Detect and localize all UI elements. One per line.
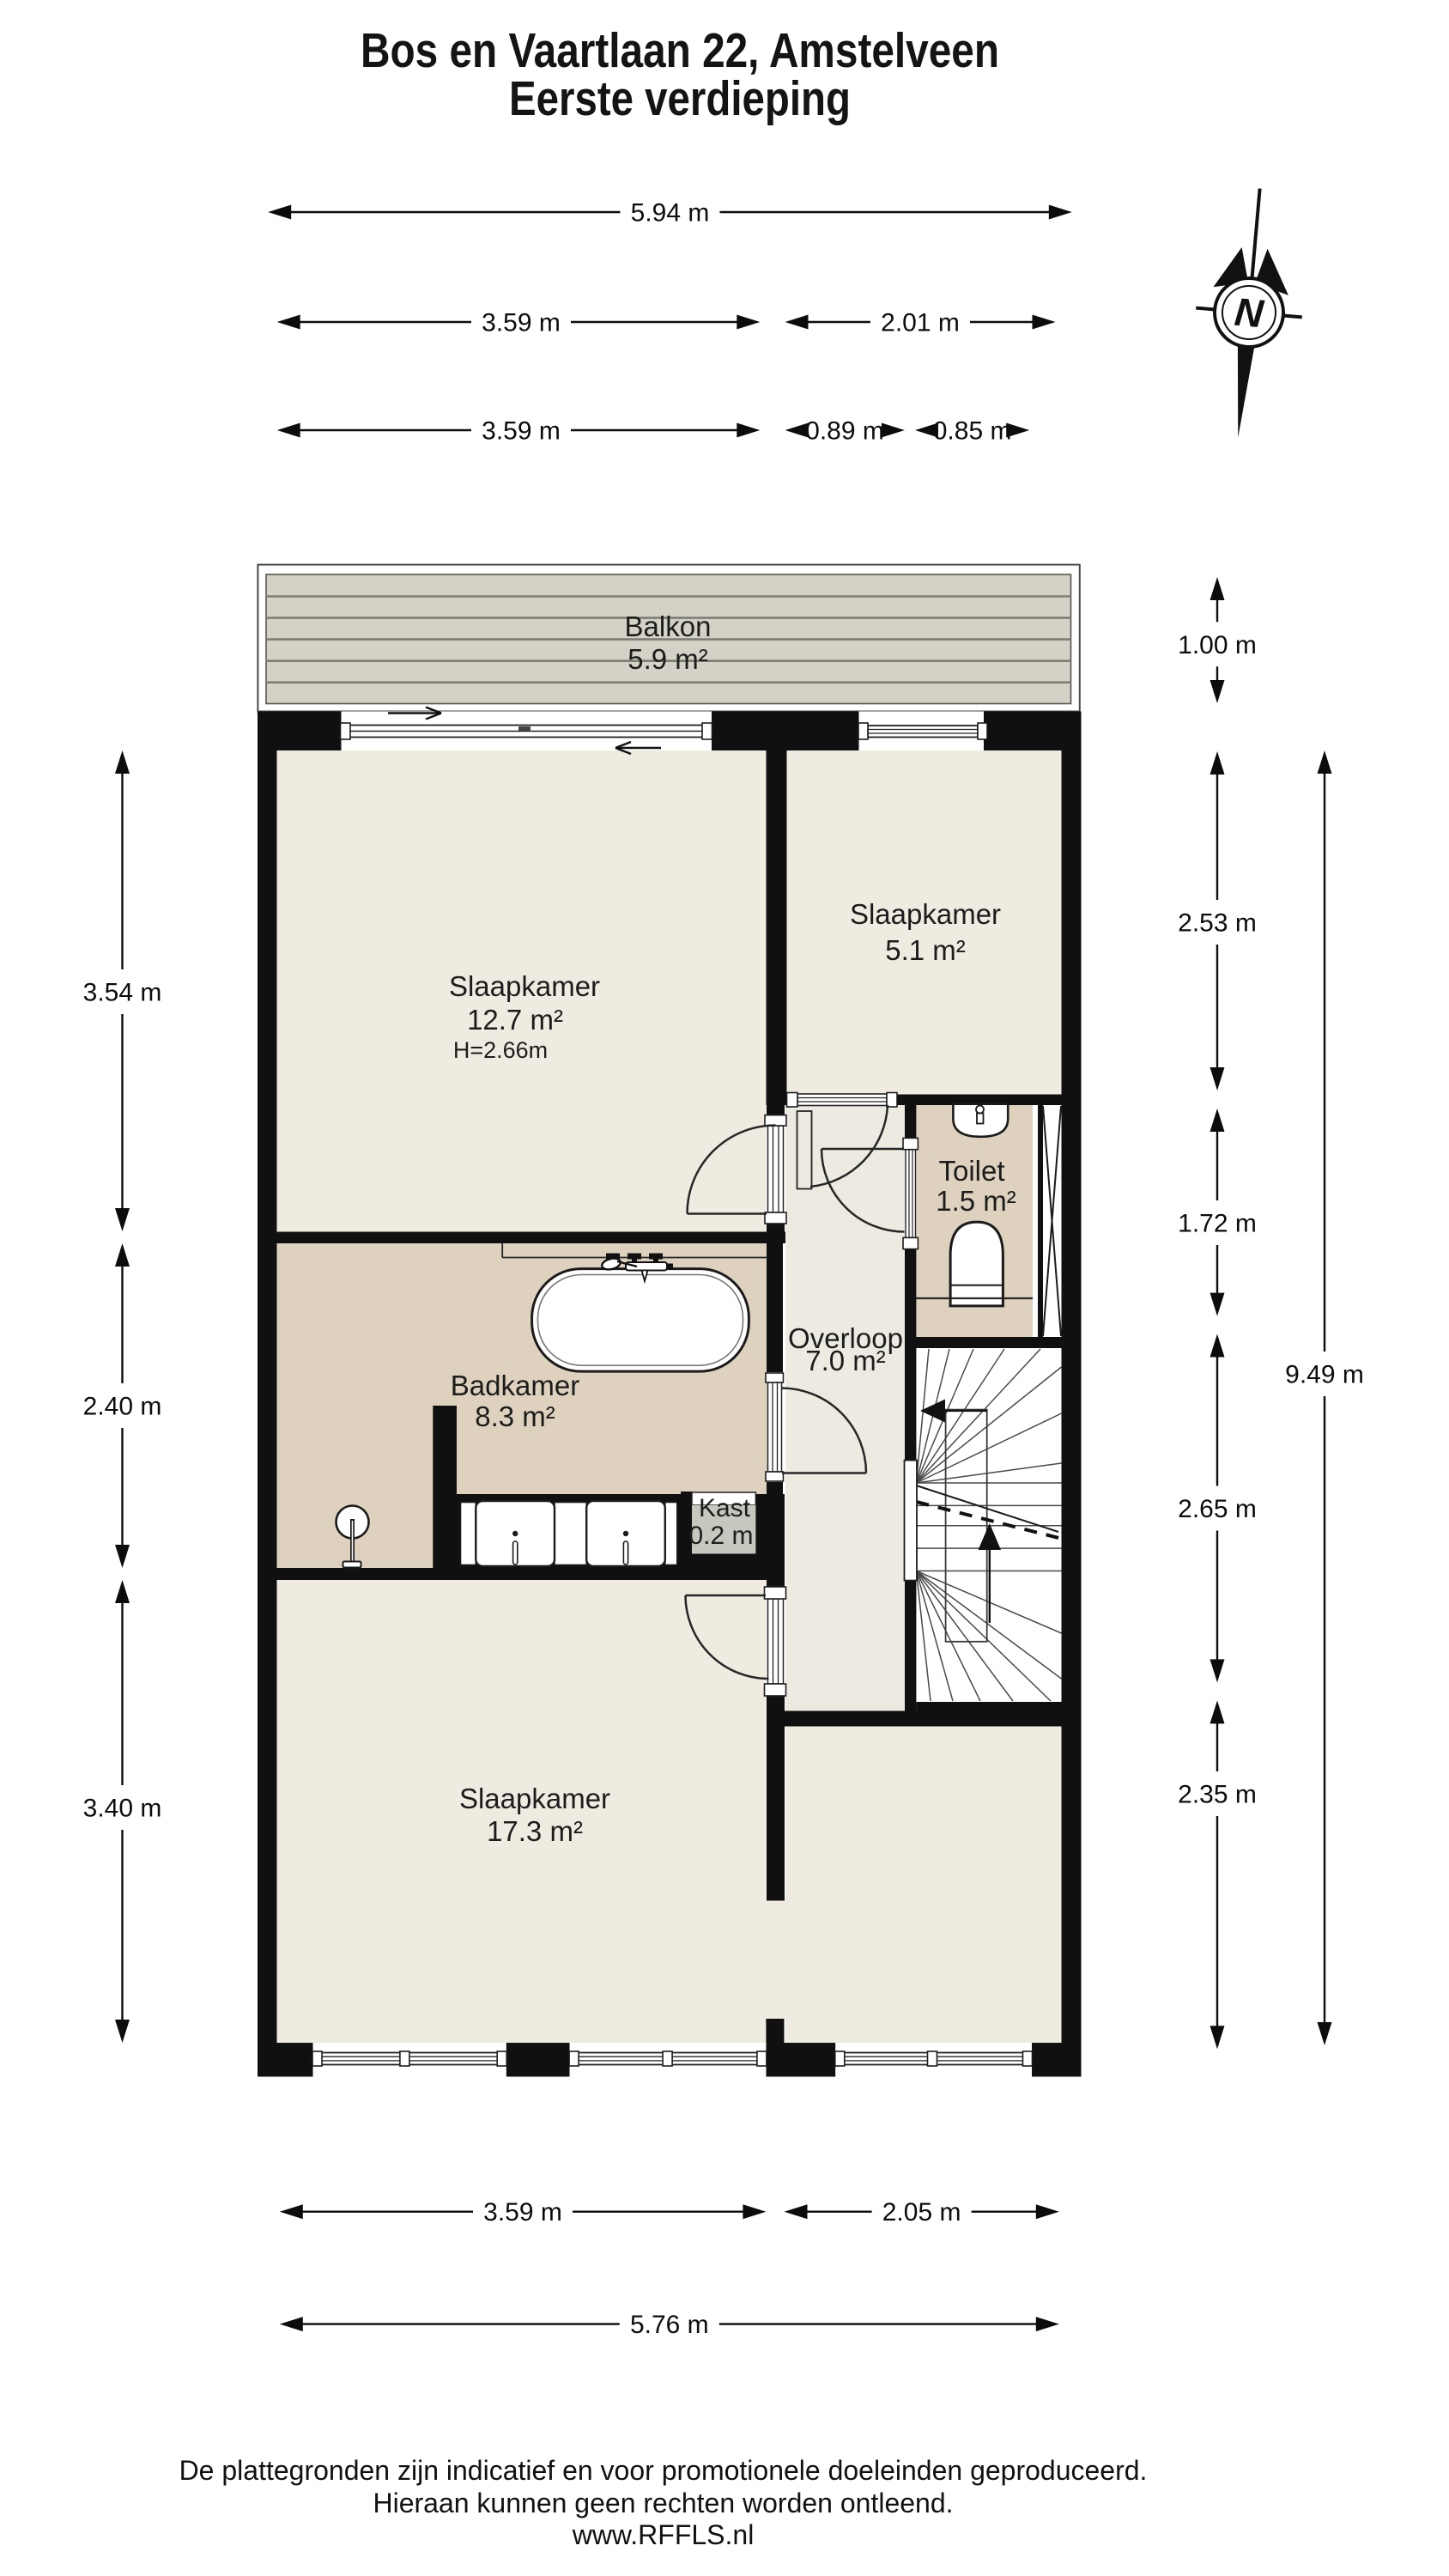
svg-text:8.3 m²: 8.3 m² <box>475 1400 555 1432</box>
svg-text:1.00 m: 1.00 m <box>1178 631 1257 659</box>
svg-text:2.35 m: 2.35 m <box>1178 1781 1257 1809</box>
svg-text:Bos en Vaartlaan 22, Amstelvee: Bos en Vaartlaan 22, Amstelveen <box>361 23 999 78</box>
svg-text:5.94 m: 5.94 m <box>631 199 710 228</box>
svg-text:0.85 m: 0.85 m <box>933 417 1012 446</box>
svg-text:17.3 m²: 17.3 m² <box>487 1815 583 1847</box>
svg-text:0.89 m: 0.89 m <box>805 417 884 446</box>
svg-text:2.40 m: 2.40 m <box>83 1393 162 1421</box>
svg-text:www.RFFLS.nl: www.RFFLS.nl <box>572 2519 755 2550</box>
svg-text:3.59 m: 3.59 m <box>482 309 561 337</box>
svg-text:5.1 m²: 5.1 m² <box>885 934 966 966</box>
svg-text:3.54 m: 3.54 m <box>83 979 162 1007</box>
svg-text:5.9 m²: 5.9 m² <box>627 643 708 675</box>
svg-text:Slaapkamer: Slaapkamer <box>449 970 600 1002</box>
svg-text:Hieraan kunnen geen rechten wo: Hieraan kunnen geen rechten worden ontle… <box>373 2488 953 2518</box>
svg-text:Balkon: Balkon <box>625 611 712 642</box>
svg-text:3.40 m: 3.40 m <box>83 1795 162 1823</box>
svg-text:Eerste verdieping: Eerste verdieping <box>509 71 851 126</box>
svg-text:9.49 m: 9.49 m <box>1285 1361 1364 1389</box>
svg-text:1.72 m: 1.72 m <box>1178 1210 1257 1238</box>
svg-text:Slaapkamer: Slaapkamer <box>459 1783 610 1814</box>
svg-text:1.5 m²: 1.5 m² <box>936 1185 1016 1217</box>
svg-text:Slaapkamer: Slaapkamer <box>850 898 1001 930</box>
svg-text:12.7 m²: 12.7 m² <box>467 1004 563 1036</box>
svg-text:2.01 m: 2.01 m <box>881 309 960 337</box>
svg-text:H=2.66m: H=2.66m <box>453 1037 548 1063</box>
svg-text:7.0 m²: 7.0 m² <box>805 1345 886 1376</box>
svg-text:3.59 m: 3.59 m <box>482 417 561 446</box>
svg-text:2.53 m: 2.53 m <box>1178 909 1257 938</box>
svg-text:N: N <box>1233 289 1265 337</box>
svg-text:2.65 m: 2.65 m <box>1178 1495 1257 1523</box>
svg-text:5.76 m: 5.76 m <box>630 2311 709 2339</box>
svg-text:Badkamer: Badkamer <box>451 1370 579 1401</box>
svg-text:0.2 m: 0.2 m <box>688 1522 753 1550</box>
svg-text:3.59 m: 3.59 m <box>483 2198 562 2227</box>
svg-text:Toilet: Toilet <box>938 1155 1004 1187</box>
svg-text:De plattegronden zijn indicati: De plattegronden zijn indicatief en voor… <box>179 2455 1148 2486</box>
svg-text:Kast: Kast <box>699 1494 751 1522</box>
svg-text:2.05 m: 2.05 m <box>882 2198 961 2227</box>
